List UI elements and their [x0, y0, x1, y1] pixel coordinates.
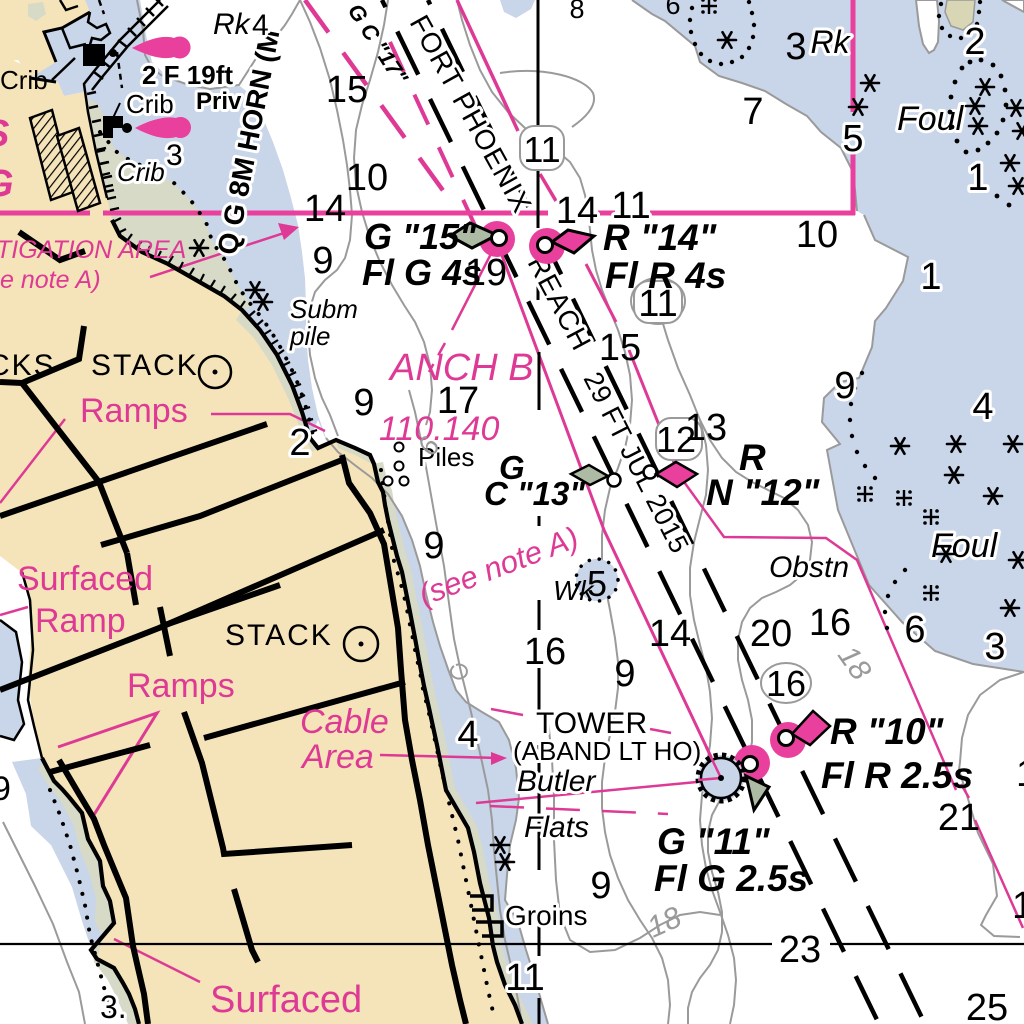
svg-text:STACK: STACK [225, 619, 333, 652]
svg-text:Crib: Crib [0, 65, 48, 95]
svg-text:2: 2 [964, 21, 985, 63]
svg-text:Rk: Rk [810, 24, 851, 60]
svg-text:Ramps: Ramps [80, 392, 188, 430]
svg-text:Fl G 2.5s: Fl G 2.5s [654, 858, 808, 899]
svg-text:G: G [0, 163, 14, 205]
svg-text:9: 9 [0, 770, 11, 808]
svg-text:6: 6 [665, 0, 680, 20]
svg-text:5: 5 [842, 118, 863, 160]
svg-text:1: 1 [967, 157, 988, 199]
svg-text:Ramps: Ramps [127, 667, 235, 705]
svg-text:Area: Area [300, 738, 374, 776]
svg-text:C "13": C "13" [484, 475, 585, 512]
svg-text:Butler: Butler [517, 765, 596, 798]
svg-text:6: 6 [904, 609, 925, 651]
svg-text:Groins: Groins [505, 900, 587, 931]
svg-text:23: 23 [779, 929, 821, 971]
svg-text:9: 9 [590, 865, 611, 907]
svg-text:2 F 19ft: 2 F 19ft [142, 60, 233, 90]
svg-text:11: 11 [523, 129, 560, 170]
svg-text:TIGATION AREA: TIGATION AREA [0, 236, 186, 264]
svg-text:1: 1 [1012, 885, 1024, 927]
svg-text:14: 14 [304, 188, 346, 230]
svg-text:STACK: STACK [91, 349, 199, 382]
svg-text:14: 14 [556, 190, 598, 232]
svg-text:4: 4 [252, 9, 269, 42]
svg-text:Cable: Cable [300, 703, 389, 741]
svg-text:Ramp: Ramp [35, 602, 126, 640]
svg-text:G "15": G "15" [364, 216, 477, 257]
svg-text:14: 14 [649, 613, 691, 655]
svg-text:8: 8 [569, 0, 584, 24]
svg-text:25: 25 [966, 987, 1008, 1024]
svg-text:S: S [0, 113, 9, 155]
svg-text:R "14": R "14" [603, 217, 717, 258]
svg-text:Flats: Flats [524, 811, 589, 844]
svg-text:3: 3 [166, 139, 183, 172]
svg-text:Surfaced: Surfaced [210, 979, 362, 1021]
svg-text:Rk: Rk [213, 8, 252, 41]
svg-text:Fl R 4s: Fl R 4s [605, 255, 726, 296]
svg-text:15: 15 [599, 327, 641, 369]
svg-text:Foul: Foul [897, 100, 965, 138]
svg-text:16: 16 [809, 602, 851, 644]
svg-text:3: 3 [785, 26, 806, 68]
svg-text:pile: pile [289, 321, 330, 351]
svg-text:17: 17 [437, 380, 479, 422]
svg-text:Surfaced: Surfaced [17, 560, 153, 598]
svg-text:16: 16 [766, 663, 806, 704]
svg-text:9: 9 [614, 653, 635, 695]
svg-text:10: 10 [796, 214, 838, 256]
svg-text:Fl G 4s: Fl G 4s [362, 252, 482, 293]
svg-text:R "10": R "10" [830, 711, 944, 752]
svg-text:4: 4 [457, 714, 478, 756]
svg-text:Fl R 2.5s: Fl R 2.5s [821, 755, 973, 796]
svg-text:CKS: CKS [0, 349, 56, 382]
svg-text:12: 12 [656, 419, 696, 460]
svg-text:N "12": N "12" [706, 472, 820, 513]
svg-text:21: 21 [938, 797, 980, 839]
svg-text:7: 7 [742, 91, 763, 133]
svg-text:4: 4 [972, 386, 993, 428]
svg-text:(ABAND LT HO): (ABAND LT HO) [513, 736, 701, 766]
svg-text:Crib: Crib [126, 89, 174, 119]
svg-text:3.: 3. [100, 989, 127, 1024]
svg-text:e note A): e note A) [0, 266, 101, 294]
svg-text:Obstn: Obstn [769, 551, 849, 584]
svg-text:Priv: Priv [196, 88, 242, 115]
svg-text:11: 11 [505, 957, 544, 999]
svg-text:2: 2 [289, 422, 310, 464]
svg-text:Subm: Subm [290, 294, 358, 324]
svg-text:9: 9 [423, 525, 444, 567]
svg-text:9: 9 [312, 240, 333, 282]
svg-text:20: 20 [750, 613, 792, 655]
svg-text:15: 15 [1016, 753, 1024, 795]
svg-text:Crib: Crib [117, 157, 165, 187]
svg-text:9: 9 [353, 382, 374, 424]
svg-text:G "11": G "11" [657, 821, 770, 862]
svg-text:3: 3 [984, 626, 1005, 668]
svg-text:5: 5 [587, 563, 607, 604]
svg-text:1: 1 [920, 256, 941, 298]
svg-text:10: 10 [346, 157, 388, 199]
svg-text:15: 15 [326, 69, 368, 111]
svg-text:16: 16 [524, 631, 566, 673]
svg-text:9: 9 [834, 365, 855, 407]
